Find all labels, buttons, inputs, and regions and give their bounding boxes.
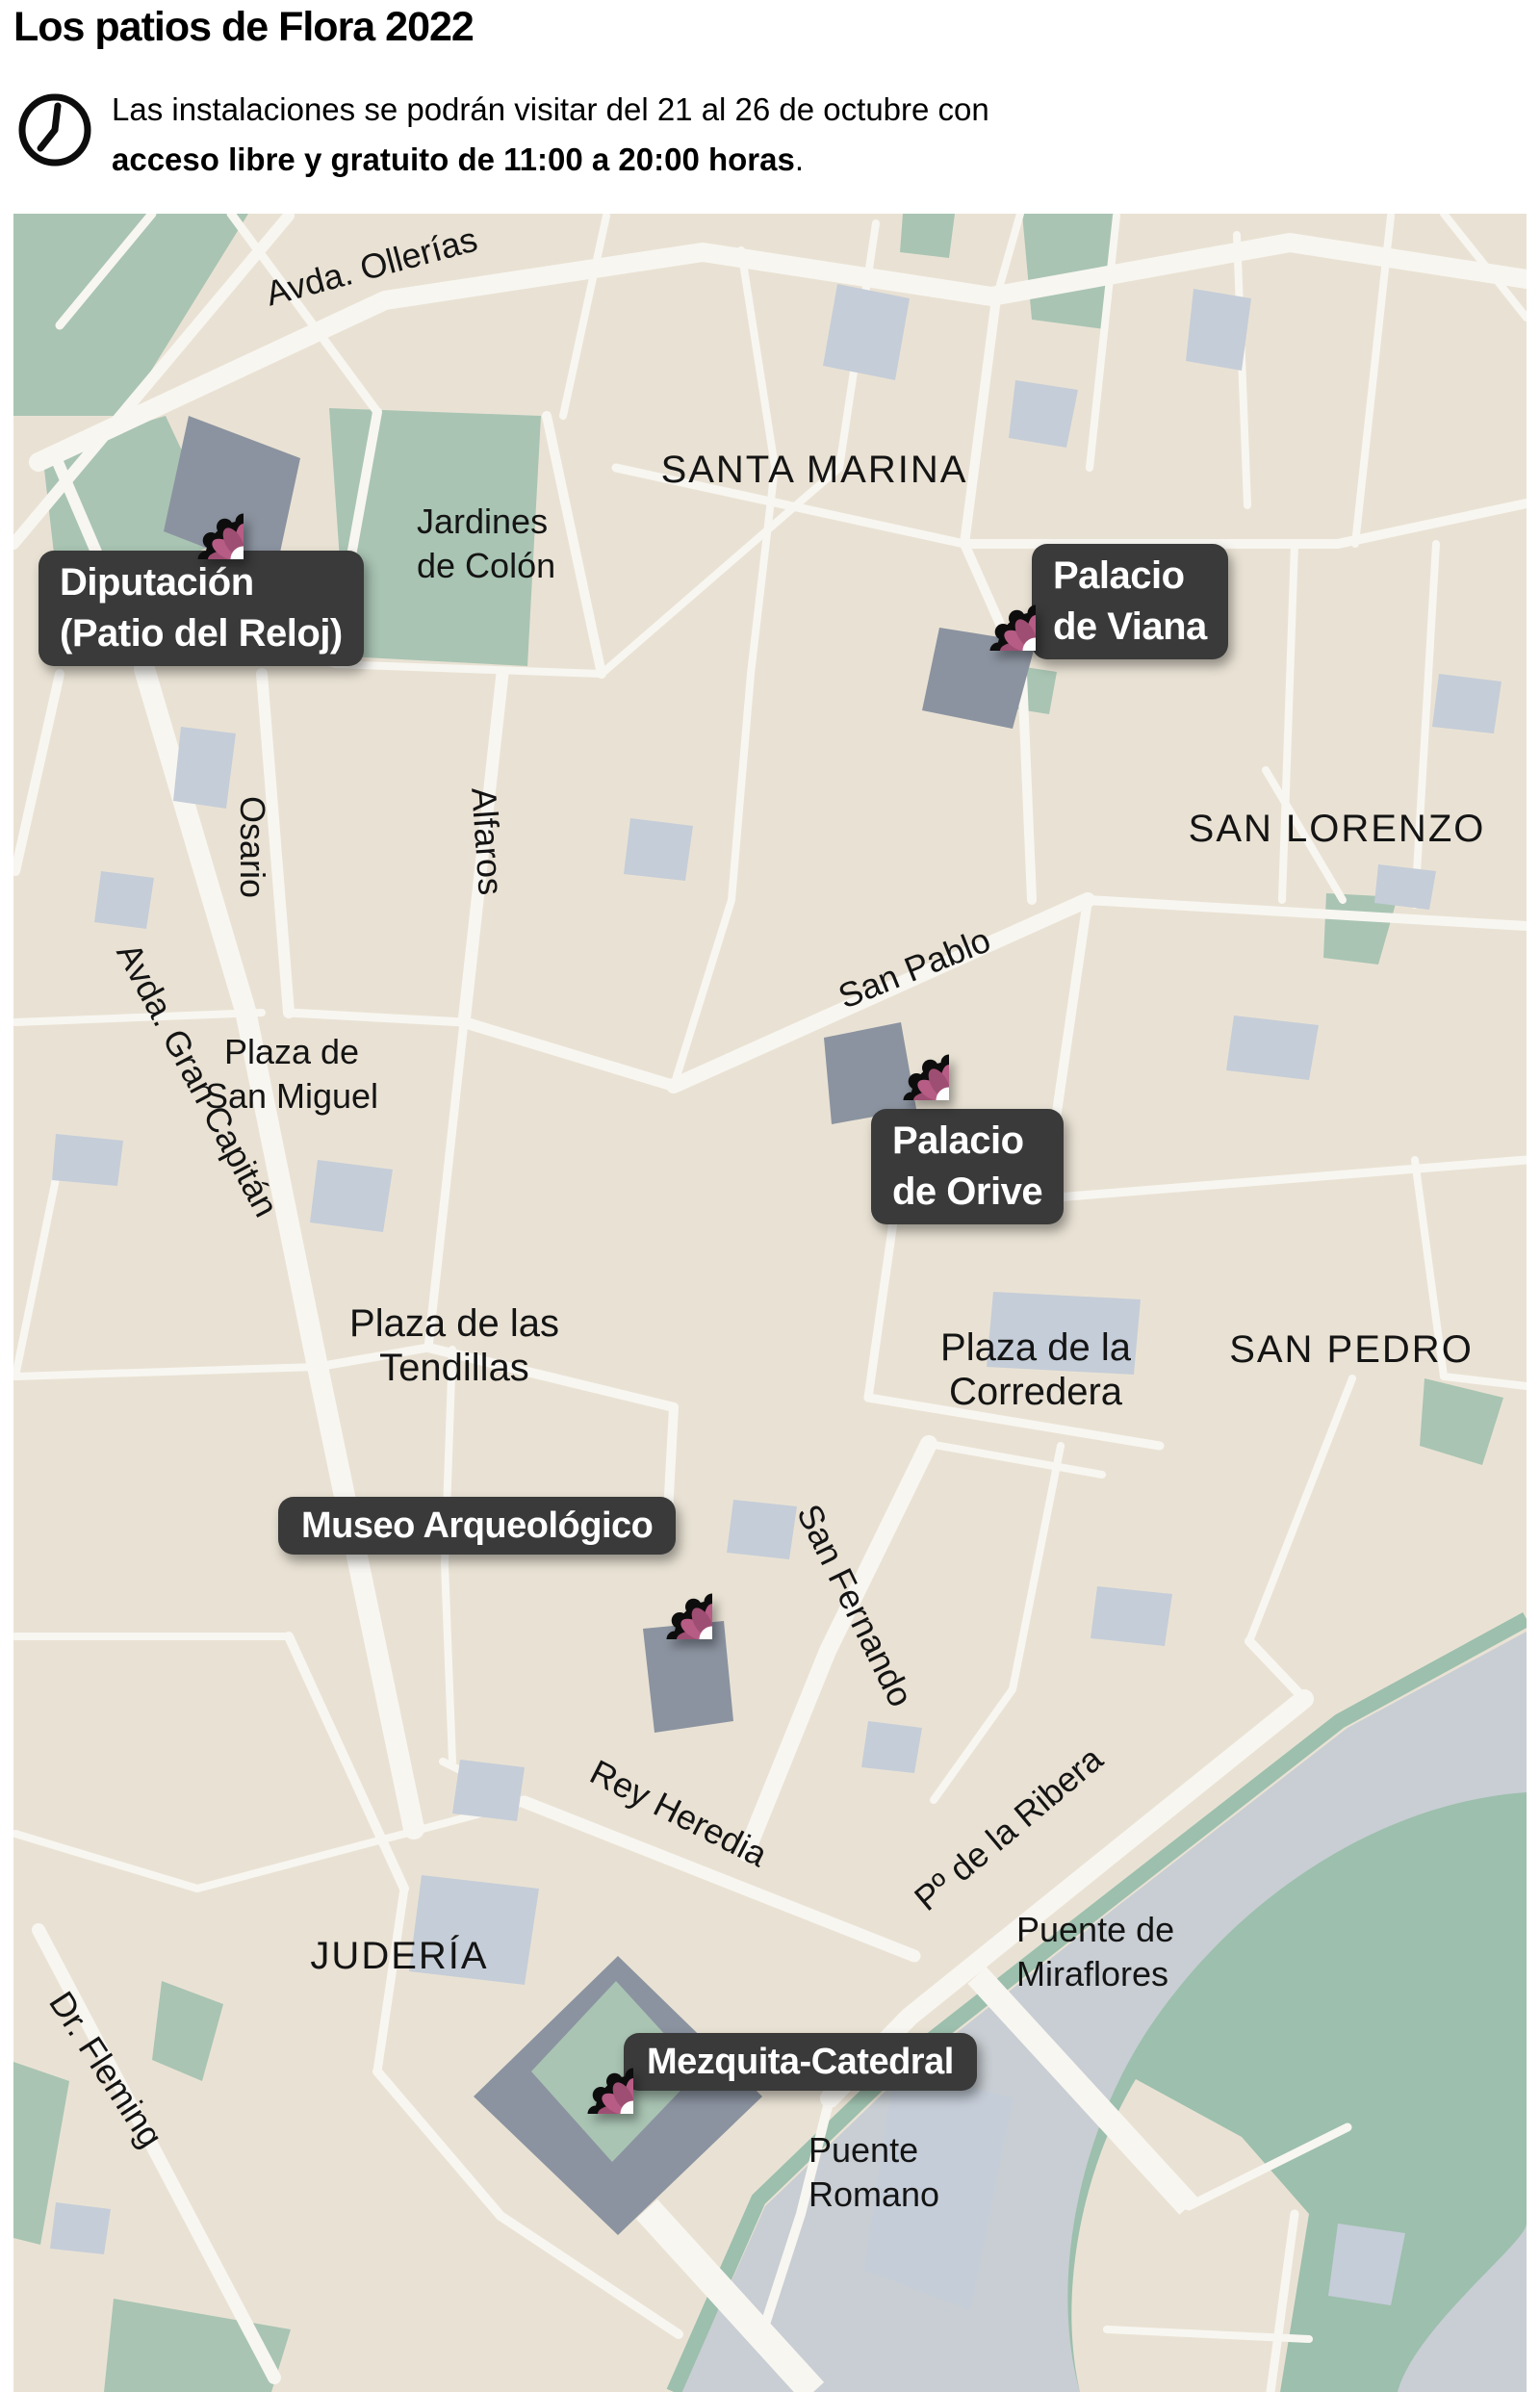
subtitle-line1: Las instalaciones se podrán visitar del … [112,89,989,131]
place-label-corredera: Plaza de la Corredera [940,1325,1131,1414]
street-label-osario: Osario [230,796,274,898]
venue-label-museo-arqueologico: Museo Arqueológico [278,1497,676,1555]
district-label-santa-marina: SANTA MARINA [661,448,968,492]
venue-label-diputacion: Diputación (Patio del Reloj) [38,551,364,666]
place-label-tendillas: Plaza de las Tendillas [349,1301,559,1390]
flower-marker-palacio-orive [857,1008,949,1100]
venue-label-mezquita-catedral: Mezquita-Catedral [624,2033,977,2091]
subtitle-line2: acceso libre y gratuito de 11:00 a 20:00… [112,139,804,181]
clock-icon [15,90,94,169]
flower-marker-museo [620,1547,712,1639]
venue-label-palacio-orive: Palacio de Orive [871,1109,1064,1224]
place-label-jardines-de-colon: Jardines de Colón [417,500,555,588]
flower-marker-diputacion [151,467,244,559]
subtitle-bold: acceso libre y gratuito de 11:00 a 20:00… [112,141,795,177]
page-title: Los patios de Flora 2022 [13,4,474,51]
flower-marker-mezquita [541,2021,633,2114]
place-label-puente-romano: Puente Romano [808,2128,939,2217]
street-label-alfaros: Alfaros [461,786,513,897]
venue-label-palacio-viana: Palacio de Viana [1032,544,1228,659]
venue-buildings [164,416,1036,2235]
flower-marker-palacio-viana [943,558,1036,651]
district-label-san-pedro: SAN PEDRO [1229,1327,1474,1372]
district-label-juderia: JUDERÍA [310,1934,488,1978]
place-label-plaza-san-miguel: Plaza de San Miguel [205,1030,378,1119]
place-label-puente-miraflores: Puente de Miraflores [1016,1908,1174,1996]
subtitle-period: . [795,141,804,177]
district-label-san-lorenzo: SAN LORENZO [1189,807,1486,851]
